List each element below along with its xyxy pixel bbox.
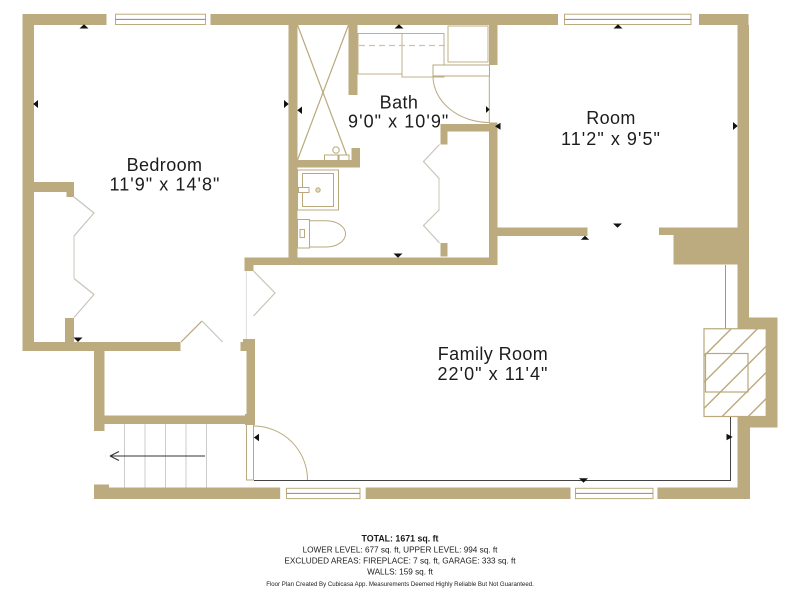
svg-text:22'0" x 11'4": 22'0" x 11'4" bbox=[437, 364, 548, 384]
svg-text:Bedroom: Bedroom bbox=[127, 155, 203, 175]
svg-text:EXCLUDED AREAS: FIREPLACE: 7 s: EXCLUDED AREAS: FIREPLACE: 7 sq. ft, GAR… bbox=[284, 557, 516, 566]
svg-text:Floor Plan Created By Cubicasa: Floor Plan Created By Cubicasa App. Meas… bbox=[266, 581, 534, 588]
svg-text:TOTAL: 1671 sq. ft: TOTAL: 1671 sq. ft bbox=[362, 534, 439, 544]
svg-text:Room: Room bbox=[586, 108, 636, 128]
svg-text:9'0" x 10'9": 9'0" x 10'9" bbox=[348, 112, 449, 132]
svg-text:Bath: Bath bbox=[380, 93, 419, 113]
svg-text:LOWER LEVEL: 677 sq. ft, UPPER: LOWER LEVEL: 677 sq. ft, UPPER LEVEL: 99… bbox=[303, 546, 498, 555]
svg-text:WALLS: 159 sq. ft: WALLS: 159 sq. ft bbox=[367, 568, 433, 577]
svg-text:11'2" x 9'5": 11'2" x 9'5" bbox=[561, 129, 661, 149]
svg-text:11'9" x 14'8": 11'9" x 14'8" bbox=[109, 175, 220, 195]
svg-text:Family Room: Family Room bbox=[438, 344, 548, 364]
